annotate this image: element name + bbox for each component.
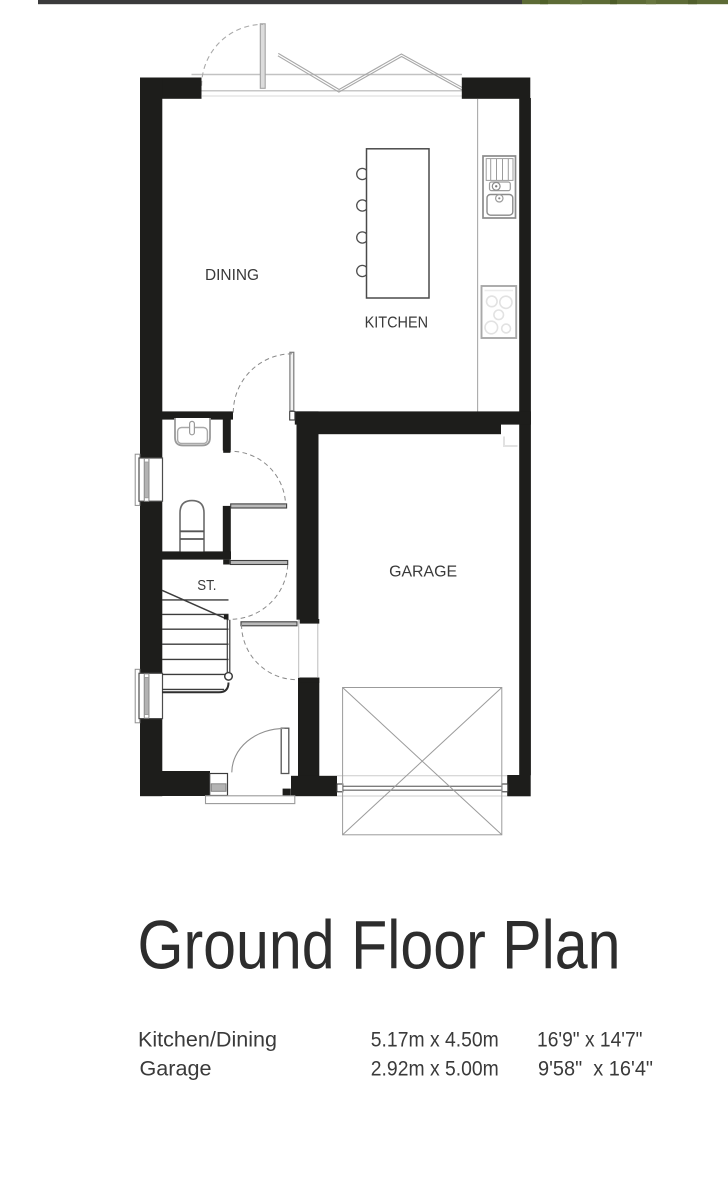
svg-text:ST.: ST. bbox=[197, 577, 216, 594]
svg-text:KITCHEN: KITCHEN bbox=[365, 315, 429, 332]
svg-text:GARAGE: GARAGE bbox=[389, 564, 457, 581]
svg-text:9'58" x 16'4": 9'58" x 16'4" bbox=[538, 1057, 653, 1081]
svg-text:2.92m x 5.00m: 2.92m x 5.00m bbox=[371, 1057, 499, 1081]
svg-text:Kitchen/Dining: Kitchen/Dining bbox=[138, 1028, 277, 1052]
svg-text:Garage: Garage bbox=[140, 1057, 212, 1081]
svg-text:16'9" x 14'7": 16'9" x 14'7" bbox=[537, 1028, 643, 1052]
svg-text:DINING: DINING bbox=[205, 267, 259, 284]
svg-text:5.17m x 4.50m: 5.17m x 4.50m bbox=[371, 1028, 499, 1052]
svg-text:Ground Floor Plan: Ground Floor Plan bbox=[138, 907, 621, 984]
